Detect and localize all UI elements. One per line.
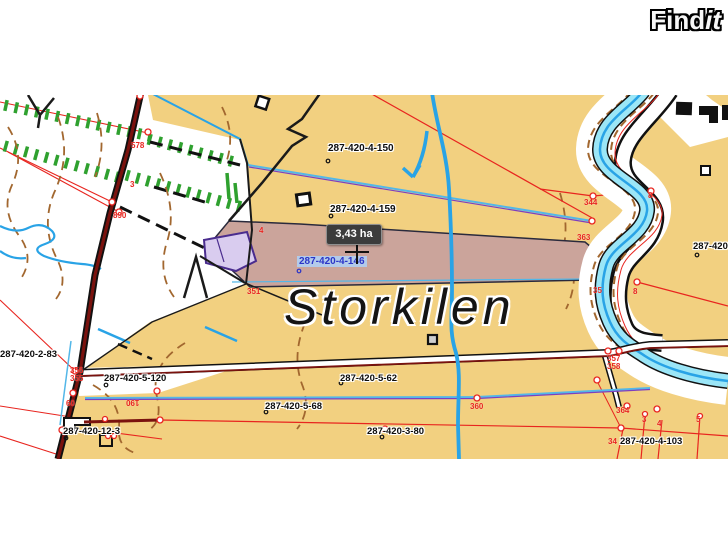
findit-map-page: Findit [0,0,728,546]
parcel-label-287-420-3-80: 287-420-3-80 [367,426,424,437]
tick-351: 351 [247,287,260,296]
parcel-label-287-420-5-120: 287-420-5-120 [104,373,166,384]
parcel-label-287-420-5-62: 287-420-5-62 [340,373,397,384]
parcel-label-287-420-12-3: 287-420-12-3 [63,426,120,437]
tick-890: 890 [113,211,126,220]
tick-8b: 8 [633,287,637,296]
tick-355: 355 [70,374,83,383]
tick-3: 3 [130,180,134,189]
parcel-label-287-420-2-83: 287-420-2-83 [0,349,57,360]
logo-find-text: Find [650,5,705,35]
tick-358: 358 [607,362,620,371]
tick-344: 344 [584,198,597,207]
tick-364: 364 [616,406,629,415]
tick-60: 60 [66,399,75,408]
place-name-storkilen: Storkilen [284,282,515,332]
tick-363: 363 [577,233,590,242]
tick-b4: 4 [657,419,661,428]
tick-35: 35 [593,286,602,295]
map-canvas[interactable]: Storkilen 287-420-4-150 287-420-4-159 28… [0,95,728,459]
parcel-label-right-edge: 287-420- [693,241,728,252]
parcel-label-287-420-5-68: 287-420-5-68 [265,401,322,412]
tick-b3: 3 [642,415,646,424]
tick-360: 360 [470,402,483,411]
tick-34: 34 [608,437,617,446]
findit-logo: Findit [650,5,721,36]
tick-b5: 5 [696,415,700,424]
parcel-label-287-420-4-150: 287-420-4-150 [328,143,394,154]
area-tooltip: 3,43 ha [326,224,382,245]
logo-it-text: it [705,5,721,35]
parcel-label-287-420-4-103: 287-420-4-103 [620,436,682,447]
tick-578: 578 [131,141,144,150]
tick-190: 190 [126,398,139,407]
tick-4: 4 [259,226,263,235]
parcel-label-287-420-4-159: 287-420-4-159 [330,204,396,215]
tick-8: 8 [648,191,652,200]
